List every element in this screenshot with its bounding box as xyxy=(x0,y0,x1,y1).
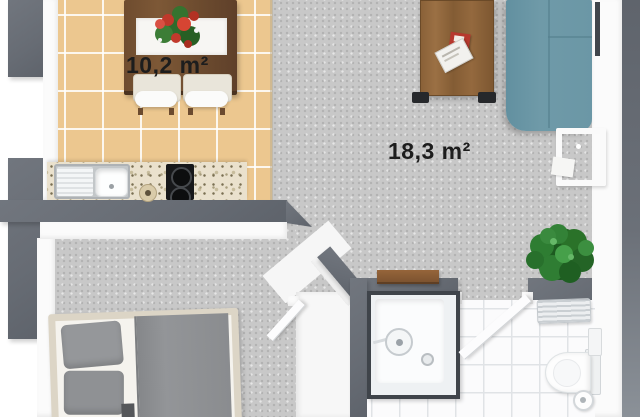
kitchen-sink xyxy=(54,164,130,199)
shower-drain xyxy=(421,353,434,366)
floor-plan: 10,2 m² 18,3 m² xyxy=(0,0,640,417)
dining-chair xyxy=(183,74,230,114)
shower xyxy=(367,291,460,399)
wall-fixture xyxy=(588,328,602,356)
sink-basin xyxy=(95,168,128,197)
sofa xyxy=(506,0,592,131)
potted-plant xyxy=(526,224,596,288)
duvet xyxy=(134,313,232,417)
towel-radiator xyxy=(537,298,592,324)
hallway-floor xyxy=(296,292,352,417)
counter-canister xyxy=(139,184,157,202)
kitchen-bedroom-wall xyxy=(0,200,287,222)
wall-shelf xyxy=(377,270,439,284)
bed xyxy=(48,308,242,417)
toilet-brush xyxy=(573,390,594,411)
exterior-wall-right xyxy=(622,0,640,417)
table-leg xyxy=(412,92,429,103)
burner-icon xyxy=(171,167,192,188)
dining-chair xyxy=(133,74,179,114)
shower-head xyxy=(385,328,413,356)
table-leg xyxy=(478,92,496,103)
burner-icon xyxy=(170,187,191,200)
flower-centerpiece xyxy=(150,0,212,58)
pillow xyxy=(64,371,124,415)
sink-drain xyxy=(109,184,114,189)
table-decor xyxy=(576,144,581,149)
floor-transition-strip xyxy=(270,0,273,200)
exterior-wall-left-upper xyxy=(8,0,45,77)
cooktop xyxy=(166,164,194,200)
area-label-kitchen: 10,2 m² xyxy=(126,52,209,79)
bathroom-left-wall xyxy=(350,278,367,417)
area-label-living: 18,3 m² xyxy=(388,138,471,165)
sink-drainboard xyxy=(57,167,93,196)
bed-gap xyxy=(121,403,135,417)
toilet xyxy=(545,352,591,393)
right-window-frame xyxy=(595,2,600,56)
side-table-shelf xyxy=(551,157,575,178)
pillow xyxy=(60,320,124,369)
kitchen-wall-face xyxy=(40,222,287,239)
